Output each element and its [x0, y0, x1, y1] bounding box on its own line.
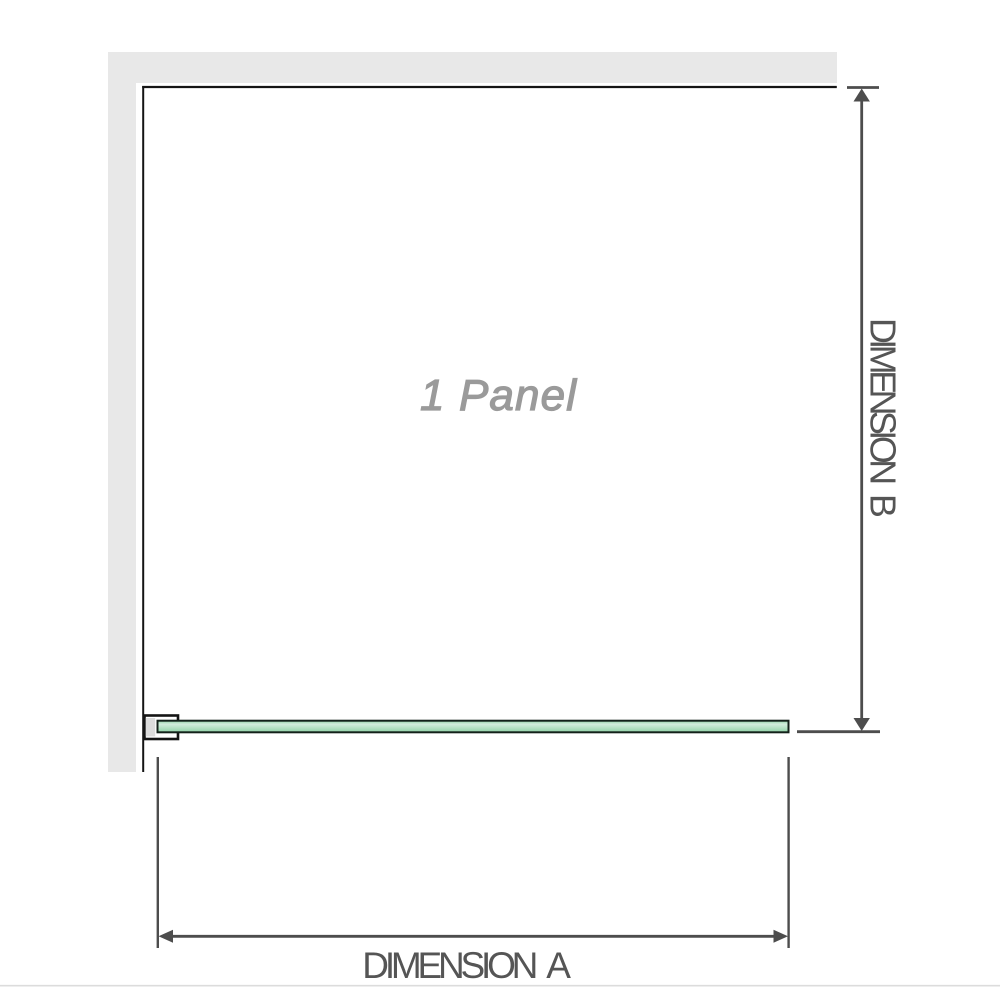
svg-text:DIMENSION A: DIMENSION A: [362, 945, 571, 986]
svg-text:DIMENSION B: DIMENSION B: [863, 318, 904, 517]
svg-text:1 Panel: 1 Panel: [420, 371, 577, 420]
